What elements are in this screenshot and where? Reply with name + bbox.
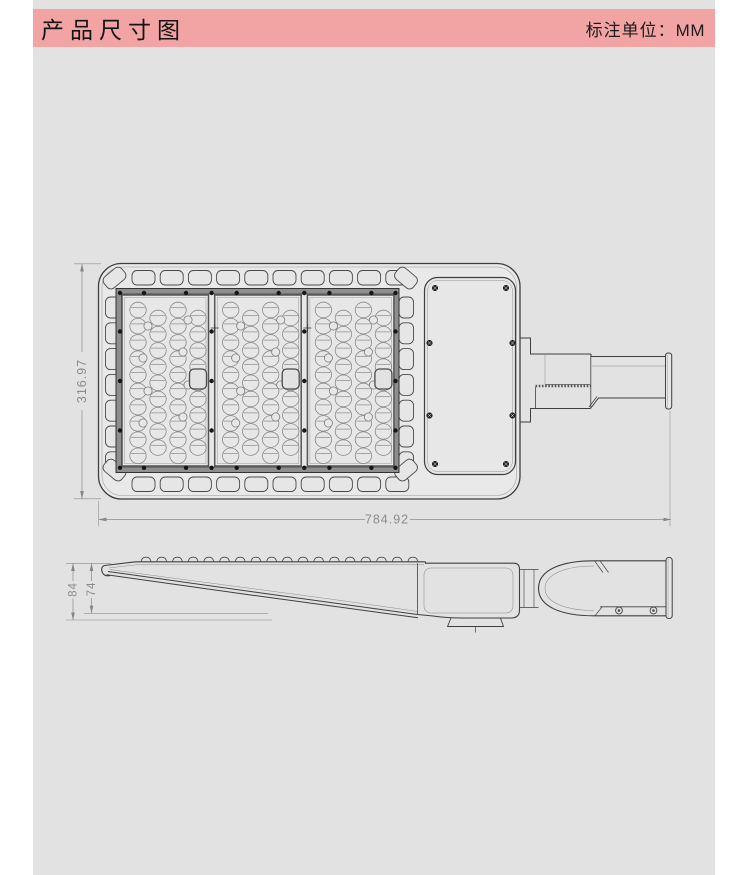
unit-value: MM — [676, 21, 705, 40]
glass-curve-3 — [110, 570, 418, 612]
screw-dot — [277, 291, 281, 295]
cover-outer — [425, 278, 516, 475]
fin — [273, 477, 296, 492]
screw-dot — [393, 428, 397, 432]
fin — [399, 297, 414, 318]
led-module — [211, 295, 302, 466]
led-hole — [272, 348, 280, 356]
fin — [160, 477, 183, 492]
led-hole — [324, 419, 332, 427]
fin — [358, 271, 381, 286]
screw-dot — [118, 329, 122, 333]
screw-dot — [142, 466, 146, 470]
led-hole — [329, 387, 337, 395]
side-profile — [102, 557, 426, 618]
fin-bump — [361, 557, 371, 562]
side-view: 84 74 — [66, 557, 672, 632]
led-hole — [179, 348, 187, 356]
fin — [245, 477, 268, 492]
fin — [160, 271, 183, 286]
fin-bump — [204, 557, 214, 562]
led-hole — [144, 387, 152, 395]
led-hole — [184, 316, 192, 324]
fin-bump — [282, 557, 292, 562]
screw-dot — [302, 291, 306, 295]
screw-dot — [302, 466, 306, 470]
fin-bump — [251, 557, 261, 562]
housing-top — [426, 562, 520, 610]
led-hole — [232, 354, 240, 362]
screw-dot — [327, 291, 331, 295]
side-top-inner — [109, 565, 424, 568]
led-hole — [237, 322, 245, 330]
screw-dot — [302, 379, 306, 383]
top-view: 784.92 316.97 — [74, 264, 672, 527]
led-hole — [237, 387, 245, 395]
fin — [399, 426, 414, 447]
fin — [329, 271, 352, 286]
screw-dot — [184, 466, 188, 470]
unit-label-text: 标注单位： — [586, 21, 676, 40]
led-hole — [179, 413, 187, 421]
fin — [132, 477, 155, 492]
dim-width-value: 784.92 — [365, 513, 409, 527]
arm-end-cap-side — [666, 558, 672, 619]
screw-dot — [327, 466, 331, 470]
fin — [188, 271, 211, 286]
screw-dot — [393, 329, 397, 333]
hinge-inner-arc — [545, 566, 594, 611]
bracket-top-edge — [520, 338, 591, 354]
screw-dot — [118, 466, 122, 470]
fin — [358, 477, 381, 492]
unit-label: 标注单位：MM — [586, 16, 705, 41]
fin-bump — [267, 557, 277, 562]
led-hole — [369, 316, 377, 324]
bracket-bottom-edge — [520, 409, 591, 423]
side-nose — [102, 566, 110, 576]
glass-curve-1 — [108, 572, 418, 615]
screw-dot — [142, 291, 146, 295]
screw-dot — [302, 329, 306, 333]
dim-side-body: 74 — [84, 563, 268, 613]
arm-bolt-1-center — [618, 609, 621, 612]
driver-cover-plate — [425, 278, 516, 475]
led-hole — [144, 322, 152, 330]
spec-page: 产品尺寸图 标注单位：MM — [33, 0, 715, 875]
fin-bump — [141, 557, 151, 562]
screw-dot — [369, 291, 373, 295]
led-module — [303, 295, 394, 466]
led-module — [122, 295, 209, 466]
screw-dot — [209, 428, 213, 432]
housing-bottom — [418, 610, 520, 618]
dim-74-value: 74 — [86, 582, 98, 597]
module-notch — [190, 369, 207, 389]
screw-dot — [277, 466, 281, 470]
fin — [132, 271, 155, 286]
fin — [188, 477, 211, 492]
fin — [301, 477, 324, 492]
led-hole — [364, 348, 372, 356]
fin — [399, 323, 414, 344]
led-hole — [329, 322, 337, 330]
fin-bump — [220, 557, 230, 562]
arm-tube-top — [591, 354, 668, 357]
dimension-drawing: 784.92 316.97 — [33, 47, 715, 875]
led-hole — [324, 354, 332, 362]
page-title: 产品尺寸图 — [41, 11, 186, 45]
fin-bump — [392, 557, 402, 562]
fin-bump — [172, 557, 182, 562]
screw-dot — [184, 291, 188, 295]
screw-dot — [209, 291, 213, 295]
fin-bump — [188, 557, 198, 562]
fin-bump — [298, 557, 308, 562]
fin-bump — [235, 557, 245, 562]
arm-notch-1 — [595, 561, 604, 573]
dim-height-value: 316.97 — [75, 359, 89, 403]
fin-bump — [408, 557, 418, 562]
led-hole — [364, 413, 372, 421]
led-hole — [232, 419, 240, 427]
fin-bump — [329, 557, 339, 562]
screw-dot — [393, 466, 397, 470]
led-hole — [272, 413, 280, 421]
fin — [301, 271, 324, 286]
fin — [245, 271, 268, 286]
dim-84-value: 84 — [68, 582, 80, 597]
fin-bump — [377, 557, 387, 562]
fin — [273, 271, 296, 286]
fin-bump — [345, 557, 355, 562]
fin — [217, 271, 240, 286]
screw-dot — [118, 428, 122, 432]
glass-curve-2 — [107, 575, 419, 618]
led-hole — [139, 419, 147, 427]
fin-bump — [314, 557, 324, 562]
module-notch — [375, 369, 392, 389]
arm-tube-bottom — [591, 398, 669, 409]
led-hole — [139, 354, 147, 362]
fin — [399, 349, 414, 370]
side-driver-housing — [418, 562, 539, 633]
side-hinge-arm — [539, 558, 673, 619]
screw-dot — [209, 466, 213, 470]
led-hole — [277, 316, 285, 324]
screw-dot — [118, 379, 122, 383]
arm-bolt-2-center — [652, 609, 655, 612]
screw-dot — [393, 291, 397, 295]
arm-notch-3 — [595, 607, 602, 616]
side-fin-bumps — [141, 557, 418, 562]
fin — [329, 477, 352, 492]
screw-dot — [302, 428, 306, 432]
fin — [217, 477, 240, 492]
housing-inner-panel — [424, 568, 513, 613]
screw-dot — [369, 466, 373, 470]
header-bar: 产品尺寸图 标注单位：MM — [33, 9, 715, 47]
dim-height: 316.97 — [74, 264, 101, 499]
arm-notch-2 — [600, 561, 609, 573]
screw-dot — [393, 379, 397, 383]
screw-dot — [209, 379, 213, 383]
led-modules — [122, 295, 394, 466]
screw-dot — [118, 291, 122, 295]
mounting-bracket-top — [520, 338, 672, 422]
screw-dot — [235, 466, 239, 470]
screw-dot — [235, 291, 239, 295]
module-notch — [282, 369, 299, 389]
housing-foot — [448, 618, 504, 627]
fin — [399, 374, 414, 395]
arm-end-cap-top — [666, 353, 672, 409]
fin — [399, 400, 414, 421]
screw-dot — [209, 329, 213, 333]
fin-bump — [157, 557, 167, 562]
